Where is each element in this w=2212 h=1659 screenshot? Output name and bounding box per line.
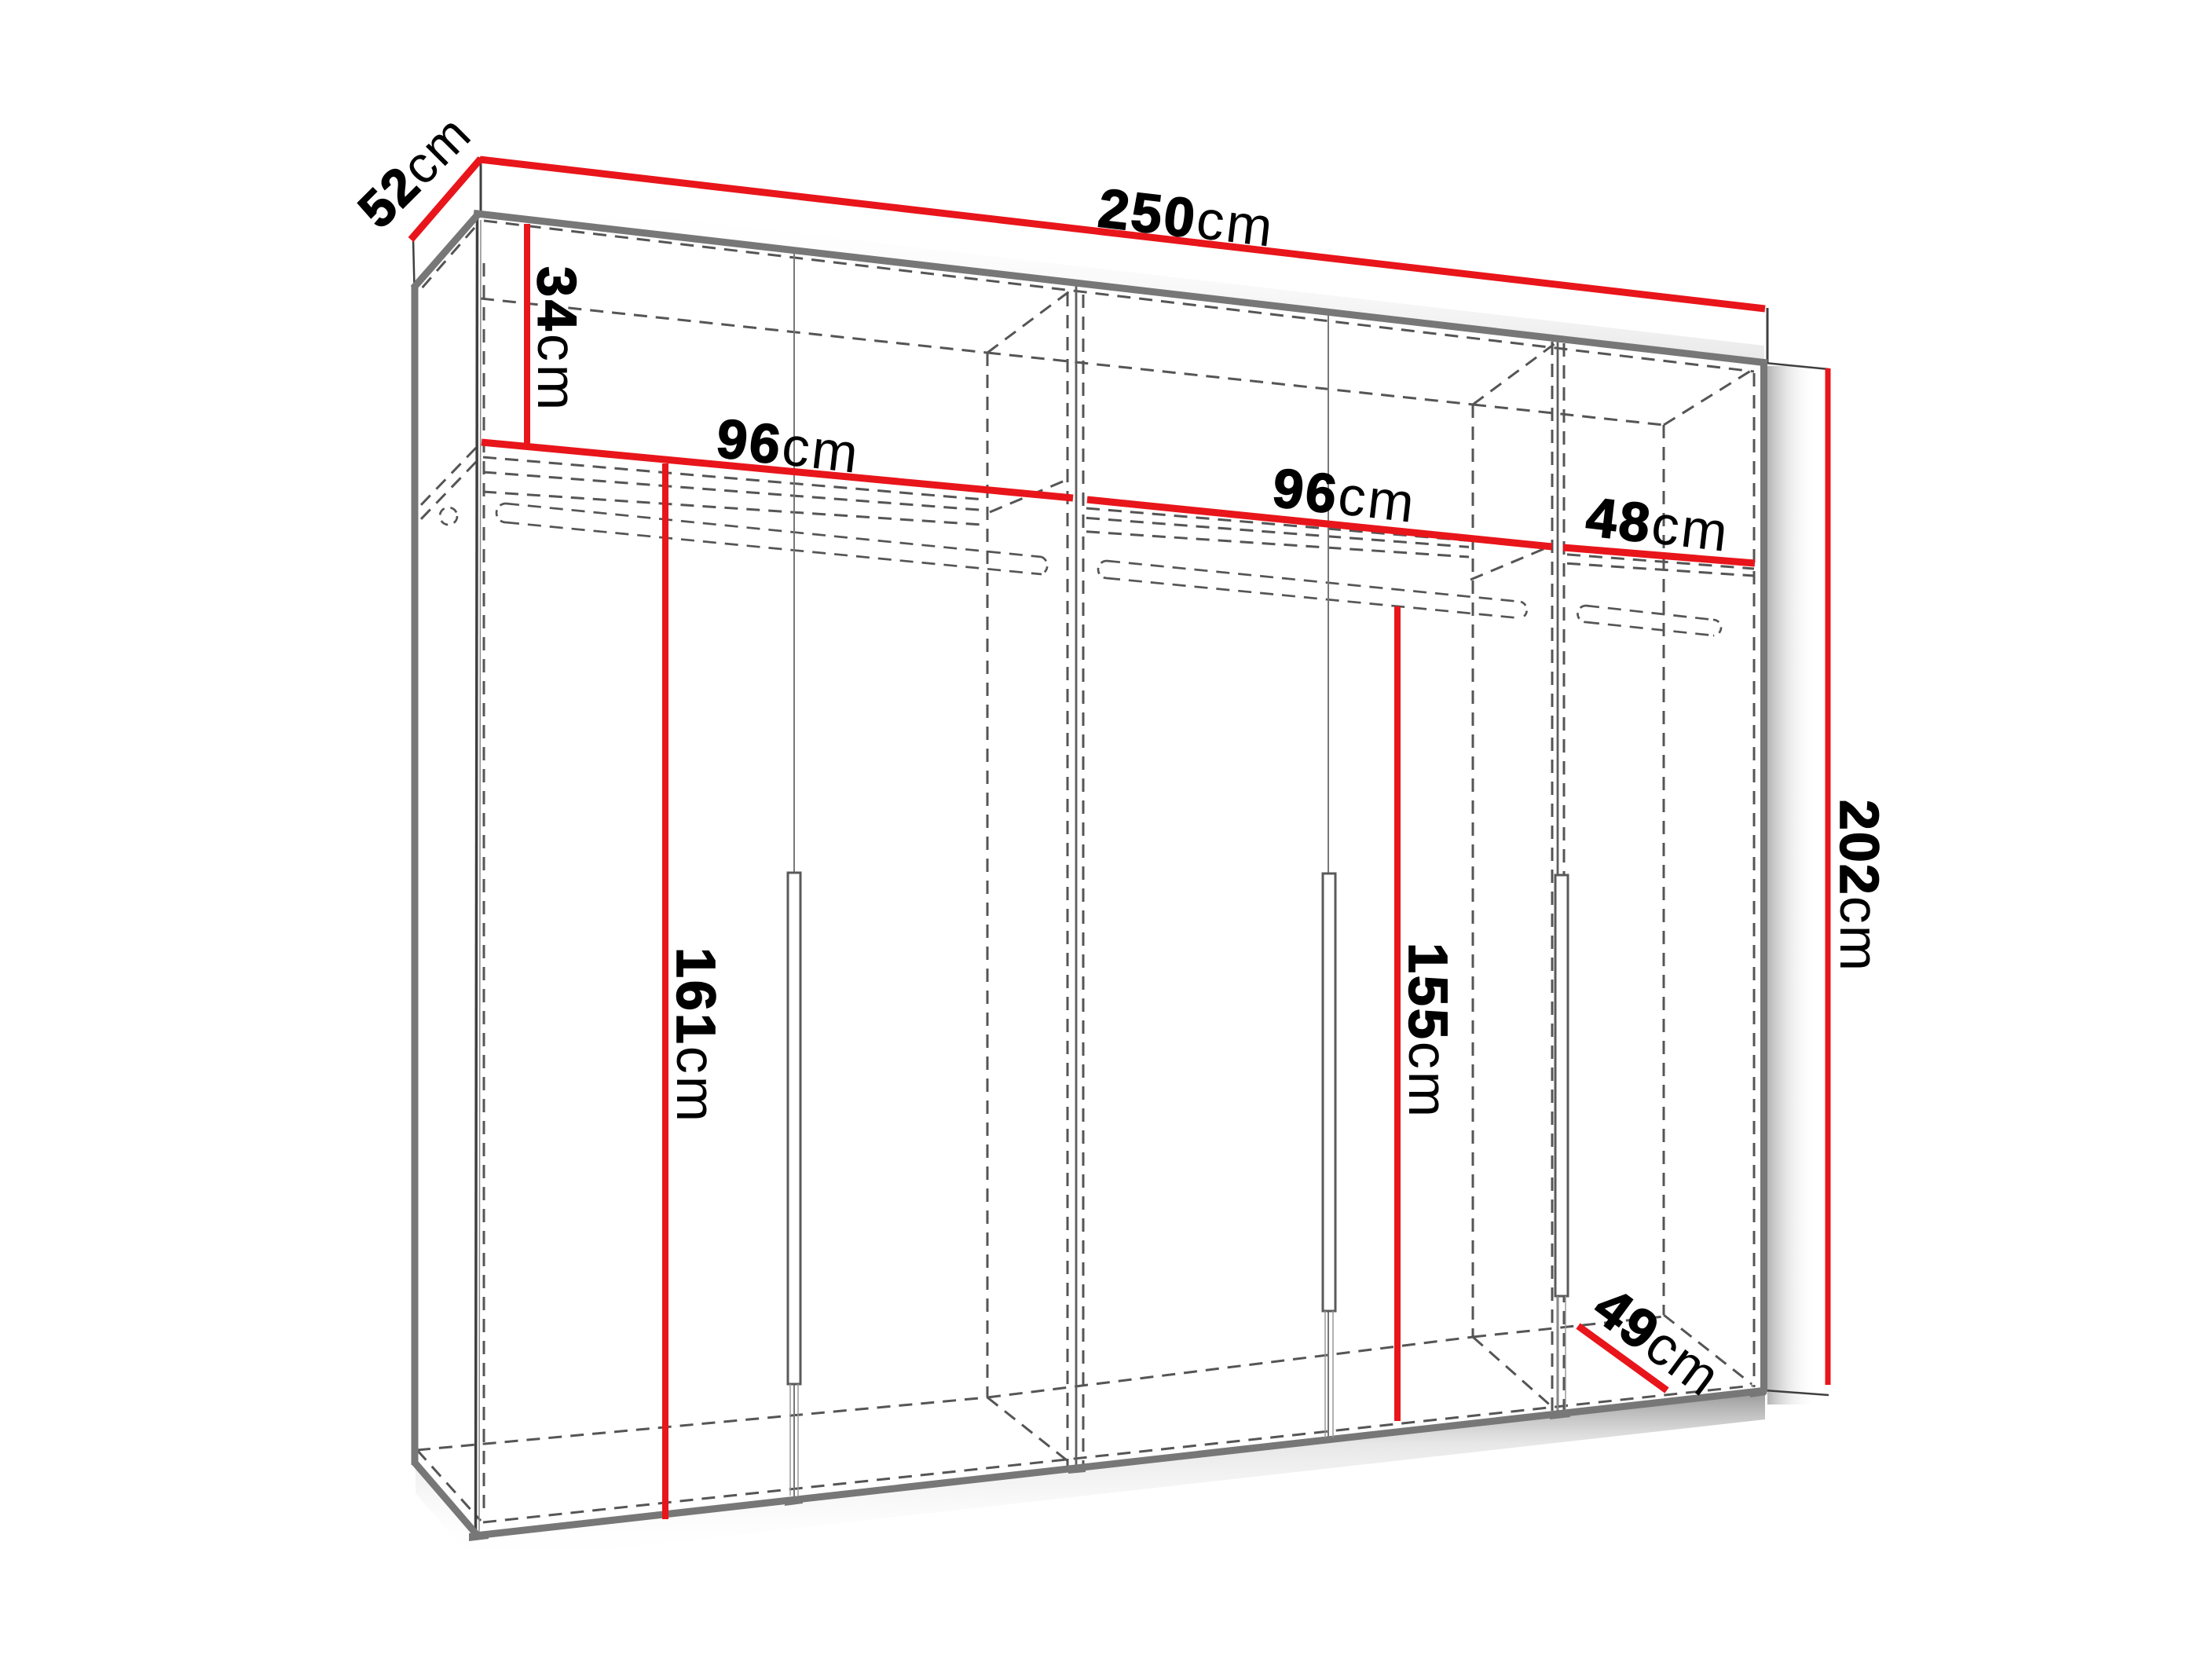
svg-text:155cm: 155cm bbox=[1397, 943, 1459, 1119]
svg-text:161cm: 161cm bbox=[665, 947, 727, 1124]
svg-text:202cm: 202cm bbox=[1829, 800, 1890, 972]
svg-text:34cm: 34cm bbox=[526, 266, 588, 413]
